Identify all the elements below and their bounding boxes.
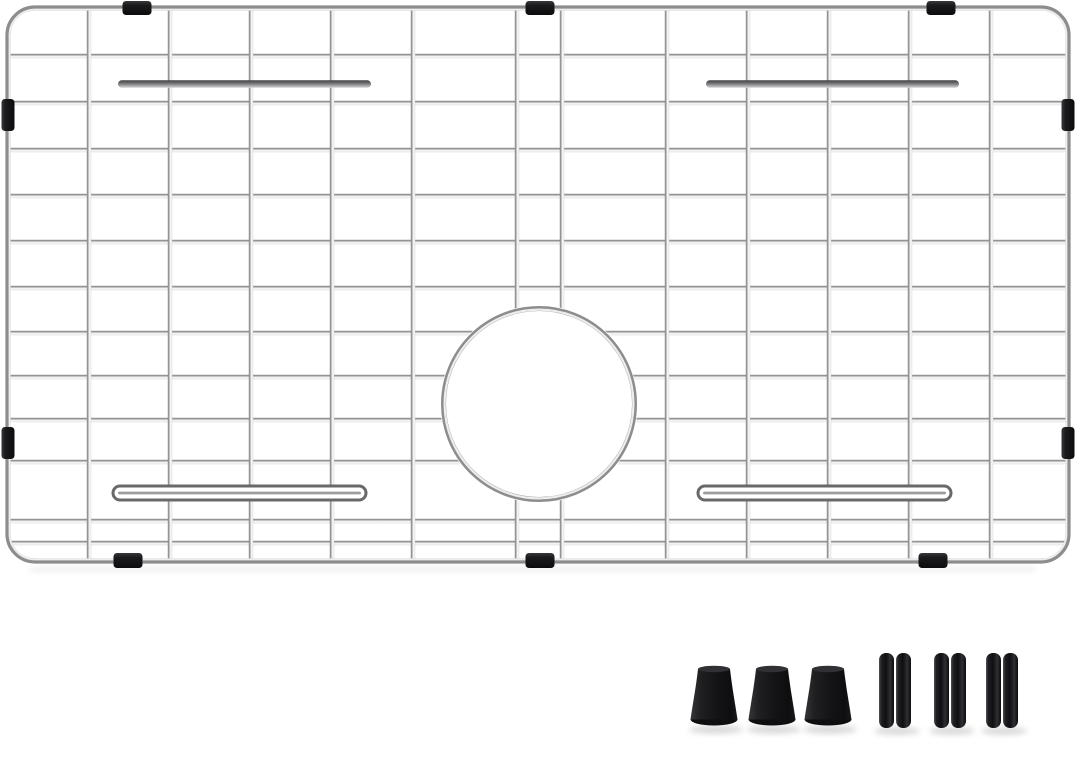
clip-foot (981, 653, 1027, 735)
grid-wire-vertical (87, 10, 91, 559)
cone-foot-top (756, 666, 788, 672)
cone-foot-top (812, 666, 844, 672)
edge-bumper-bottom (114, 553, 143, 568)
clip-foot-prong (934, 653, 949, 728)
grid-wire-vertical (168, 10, 172, 559)
cone-foot-body (749, 669, 796, 720)
cone-foot-top (698, 666, 730, 672)
cone-foot-shadow (803, 725, 857, 734)
cone-foot-body (805, 669, 852, 720)
clip-foot-prong (896, 653, 911, 728)
clip-foot-prong (879, 653, 894, 728)
edge-bumper-left (2, 427, 15, 459)
grid-wire-vertical (827, 10, 831, 559)
edge-bumper-top (123, 1, 152, 15)
feet-bar-bottom-inner (118, 492, 361, 495)
cone-foot (803, 666, 857, 734)
clip-foot (874, 653, 920, 735)
clip-foot-shadow (874, 727, 920, 735)
edge-bumper-bottom (526, 553, 555, 568)
cone-foot-body (691, 669, 738, 720)
feet-bar-top (706, 80, 959, 88)
edge-bumper-top (526, 1, 555, 15)
grid-wire-vertical (411, 10, 415, 559)
cone-foot-shadow (689, 725, 743, 734)
edge-bumper-right (1062, 99, 1075, 131)
sink-grid-product-photo (0, 0, 1080, 777)
grid-wire-vertical (989, 10, 993, 559)
edge-bumper-left (2, 99, 15, 131)
drain-hole-opening (440, 305, 637, 502)
clip-foot (929, 653, 975, 735)
edge-bumper-top (927, 1, 956, 15)
edge-bumper-bottom (919, 553, 948, 568)
cone-foot (689, 666, 743, 734)
clip-foot-prong (1003, 653, 1018, 728)
feet-bar-bottom-inner (703, 492, 946, 495)
clip-foot-shadow (929, 727, 975, 735)
cone-foot (747, 666, 801, 734)
rubber-cone-feet (689, 666, 857, 734)
grid-wire-vertical (908, 10, 912, 559)
clip-foot-prong (986, 653, 1001, 728)
grid-wire-vertical (665, 10, 669, 559)
grid-wire-vertical (330, 10, 334, 559)
product-image (0, 0, 1080, 777)
rubber-clip-feet (874, 653, 1027, 735)
edge-bumper-right (1062, 427, 1075, 459)
grid-wire-vertical (249, 10, 253, 559)
clip-foot-shadow (981, 727, 1027, 735)
grid-wire-vertical (746, 10, 750, 559)
cone-foot-shadow (747, 725, 801, 734)
feet-bar-top (118, 80, 371, 88)
clip-foot-prong (951, 653, 966, 728)
